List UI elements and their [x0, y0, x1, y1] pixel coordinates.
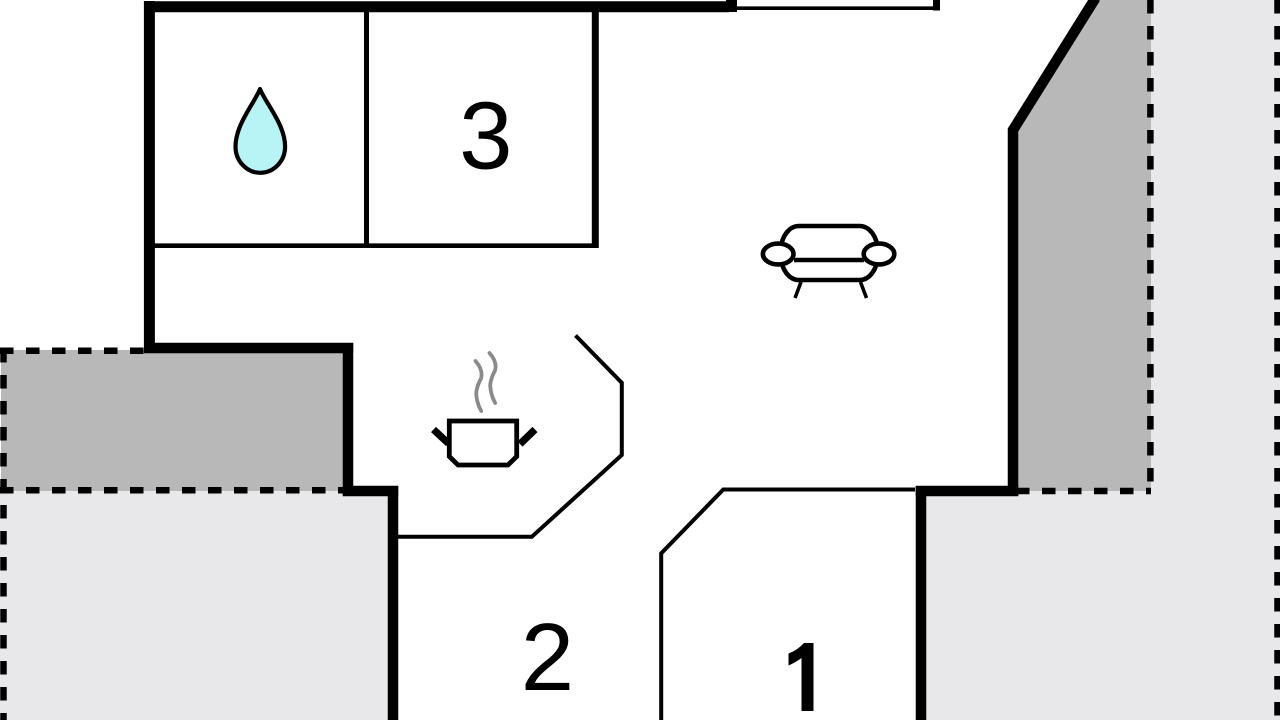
svg-text:3: 3 — [459, 83, 512, 190]
svg-text:2: 2 — [521, 604, 574, 711]
